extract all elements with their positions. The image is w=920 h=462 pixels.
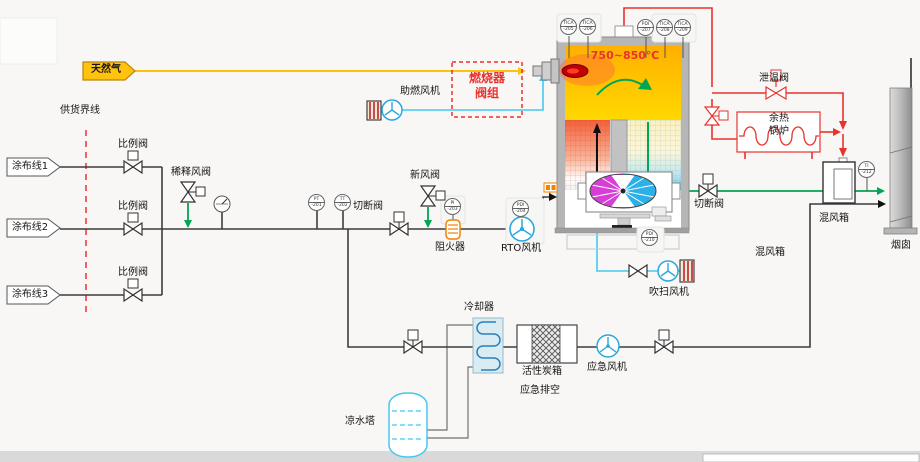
dilution-valve-label: 稀释风阀: [171, 167, 211, 179]
coating-line-2-label: 涂布线2: [9, 222, 51, 234]
cooler-label: 冷却器: [464, 302, 494, 314]
pedestal-stem: [618, 218, 630, 225]
supply-boundary-label: 供货界线: [60, 105, 100, 117]
outlet-shutoff-valve: [699, 174, 717, 197]
drive-box: [652, 207, 666, 216]
pedestal-tray: [600, 214, 650, 218]
emergency-vent-label: 应急排空: [520, 385, 560, 397]
instrument-tica1: TICA -205: [560, 18, 577, 35]
furnace-top-nozzle: [615, 26, 633, 38]
furnace-inlet-arrow: [549, 193, 557, 201]
chimney-inlet-arrow: [878, 200, 886, 208]
chimney-label: 烟囱: [891, 240, 911, 252]
fresh-air-valve-label: 新风阀: [410, 170, 440, 182]
boiler-inlet-valve: [705, 107, 728, 125]
rotary-flange-right: [672, 183, 680, 199]
purge-fan-symbol: [658, 260, 694, 282]
boiler-label-line1: 余热: [751, 112, 807, 125]
rto-fan-label: RTO风机: [501, 243, 541, 255]
emergency-fan-label: 应急风机: [587, 362, 627, 374]
rotary-hub: [621, 189, 626, 194]
red-arrow-down-1: [839, 121, 847, 130]
instrument-tag: -207: [638, 27, 653, 33]
prop-valve-label-1: 比例阀: [108, 139, 158, 151]
burner-flame-core: [567, 68, 579, 73]
rto-fan-symbol: [510, 217, 534, 241]
combustion-fan-symbol: [367, 100, 402, 120]
mix-box-label-1: 混风箱: [755, 247, 785, 259]
boiler-label: 余热 锅炉: [751, 112, 807, 138]
emergency-fan-symbol: [597, 335, 619, 357]
instrument-tag: -201: [309, 202, 324, 208]
cooler-symbol: [473, 318, 503, 373]
combustion-fan-label: 助燃风机: [400, 86, 440, 98]
burner-flange: [551, 59, 559, 83]
burner-group-label-line1: 燃烧器: [454, 71, 520, 86]
mix-box-label-2: 混风箱: [819, 213, 849, 225]
red-arrow-down-2: [839, 148, 847, 157]
instrument-tag: -206: [580, 26, 595, 32]
instrument-tt: TT -202: [334, 194, 351, 211]
cooling-tower-symbol: [389, 393, 427, 457]
prop-valve-label-2: 比例阀: [108, 201, 158, 213]
pressure-gauge: [214, 196, 230, 212]
rto-process-diagram: 天然气 供货界线 涂布线1 涂布线2 涂布线3 比例阀 比例阀 比例阀 稀释风阀…: [0, 0, 920, 462]
prop-valve-label-3: 比例阀: [108, 267, 158, 279]
instrument-tag: -208: [657, 27, 672, 33]
instrument-pdi-fan: PDI -204: [512, 200, 529, 217]
instrument-tica2: TICA -206: [579, 18, 596, 35]
main-shutoff-valve: [390, 212, 408, 235]
rotary-flange-left: [578, 183, 586, 199]
instrument-tag: -205: [561, 26, 576, 32]
instrument-tica3: TICA -208: [656, 19, 673, 36]
red-arrow-right: [833, 128, 841, 136]
chimney-structure: [884, 58, 917, 234]
instrument-tag: -209: [675, 27, 690, 33]
natural-gas-label: 天然气: [85, 64, 127, 76]
emergency-valve-1: [404, 330, 422, 353]
coating-line-3-label: 涂布线3: [9, 289, 51, 301]
carbon-box-label: 活性炭箱: [522, 366, 562, 378]
flame-arrester-label: 阻火器: [435, 242, 465, 254]
burner-group-label-line2: 阀组: [454, 86, 520, 101]
instrument-tag: -204: [513, 208, 528, 214]
cooling-water-pipes: [427, 325, 474, 438]
flame-arrester-symbol: [446, 220, 460, 239]
instrument-tag: -203: [445, 206, 460, 212]
instrument-pt: PT -201: [308, 194, 325, 211]
background-card: [0, 18, 57, 64]
drive-base: [655, 216, 671, 221]
burner-group-label: 燃烧器 阀组: [454, 71, 520, 101]
temp-range-label: 750~850℃: [588, 50, 662, 62]
cooling-tower-label: 凉水塔: [345, 416, 375, 428]
instrument-tag: -202: [335, 202, 350, 208]
relief-valve-label: 泄温阀: [759, 73, 789, 85]
burner-body-1: [533, 66, 542, 76]
shutoff-valve-label-outlet: 切断阀: [694, 199, 724, 211]
purge-fan-label: 吹扫风机: [649, 287, 689, 299]
coating-line-1-label: 涂布线1: [9, 161, 51, 173]
shutoff-valve-label-main: 切断阀: [353, 201, 383, 213]
boiler-label-line2: 锅炉: [751, 125, 807, 138]
instrument-pi: PI -203: [444, 198, 461, 215]
dilution-air-valve: [181, 182, 205, 202]
instrument-ti-mix: TI -212: [858, 161, 875, 178]
instrument-tica4: TICA -209: [674, 19, 691, 36]
emergency-valve-2: [655, 330, 673, 353]
piping-diagram-canvas: [0, 0, 920, 462]
mixing-box: [823, 158, 855, 203]
instrument-tag: -210: [642, 237, 657, 243]
instrument-tag: -212: [859, 169, 874, 175]
instrument-pdi-bottom: PDI -210: [641, 229, 658, 246]
furnace-base: [555, 228, 689, 233]
activated-carbon-box: [517, 325, 577, 363]
center-column: [611, 120, 627, 173]
instrument-pdi-top: PDI -207: [637, 19, 654, 36]
bottom-strip-panel: [703, 454, 919, 462]
purge-valve: [629, 265, 647, 277]
burner-body-2: [542, 62, 551, 80]
